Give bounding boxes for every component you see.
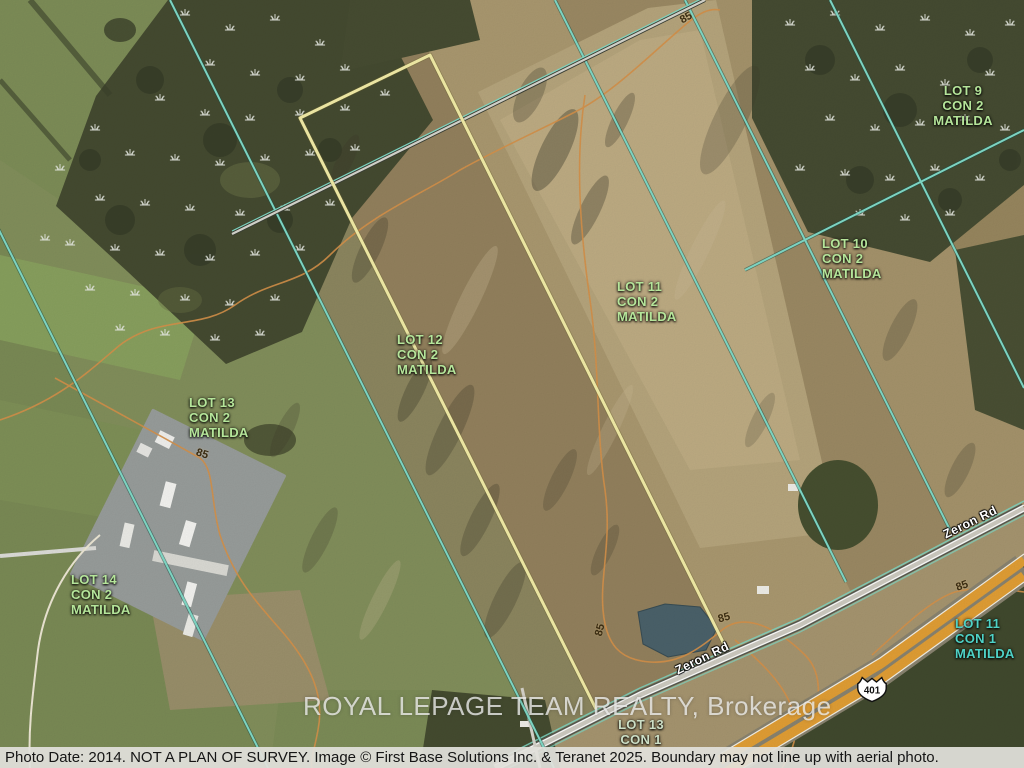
lot-label-line: MATILDA	[189, 425, 249, 440]
photo-disclaimer-bar: Photo Date: 2014. NOT A PLAN OF SURVEY. …	[0, 747, 1024, 768]
brokerage-watermark: ROYAL LEPAGE TEAM REALTY, Brokerage	[303, 691, 832, 722]
lot-label-line: MATILDA	[397, 362, 457, 377]
aerial-map: LOT 9CON 2MATILDALOT 10CON 2MATILDALOT 1…	[0, 0, 1024, 768]
lot-label-lot-12: LOT 12CON 2MATILDA	[397, 332, 457, 377]
aerial-photo-layer	[0, 0, 1024, 768]
highway-shield-number: 401	[864, 686, 881, 697]
lot-label-line: MATILDA	[955, 646, 1015, 661]
lot-label-line: CON 2	[923, 98, 1003, 113]
lot-label-line: CON 2	[397, 347, 457, 362]
lot-label-line: LOT 13	[189, 395, 249, 410]
lot-label-line: MATILDA	[71, 602, 131, 617]
lot-label-line: LOT 10	[822, 236, 882, 251]
lot-label-line: CON 2	[189, 410, 249, 425]
lot-label-lot-11-con2: LOT 11CON 2MATILDA	[617, 279, 677, 324]
lot-label-lot-14: LOT 14CON 2MATILDA	[71, 572, 131, 617]
lot-label-line: CON 1	[955, 631, 1015, 646]
lot-label-line: CON 2	[822, 251, 882, 266]
highway-401-shield: 401	[856, 676, 888, 704]
lot-label-lot-10: LOT 10CON 2MATILDA	[822, 236, 882, 281]
lot-label-line: CON 1	[603, 732, 679, 747]
lot-label-line: LOT 11	[955, 616, 1015, 631]
photo-grain	[0, 0, 1024, 768]
lot-label-line: MATILDA	[617, 309, 677, 324]
lot-label-line: LOT 9	[923, 83, 1003, 98]
lot-label-lot-11-con1: LOT 11CON 1MATILDA	[955, 616, 1015, 661]
lot-label-line: LOT 12	[397, 332, 457, 347]
lot-label-line: CON 2	[617, 294, 677, 309]
lot-label-line: MATILDA	[923, 113, 1003, 128]
lot-label-line: MATILDA	[822, 266, 882, 281]
lot-label-line: CON 2	[71, 587, 131, 602]
lot-label-lot-9: LOT 9CON 2MATILDA	[923, 83, 1003, 128]
lot-label-lot-13-con2: LOT 13CON 2MATILDA	[189, 395, 249, 440]
lot-label-line: LOT 14	[71, 572, 131, 587]
lot-label-line: LOT 11	[617, 279, 677, 294]
